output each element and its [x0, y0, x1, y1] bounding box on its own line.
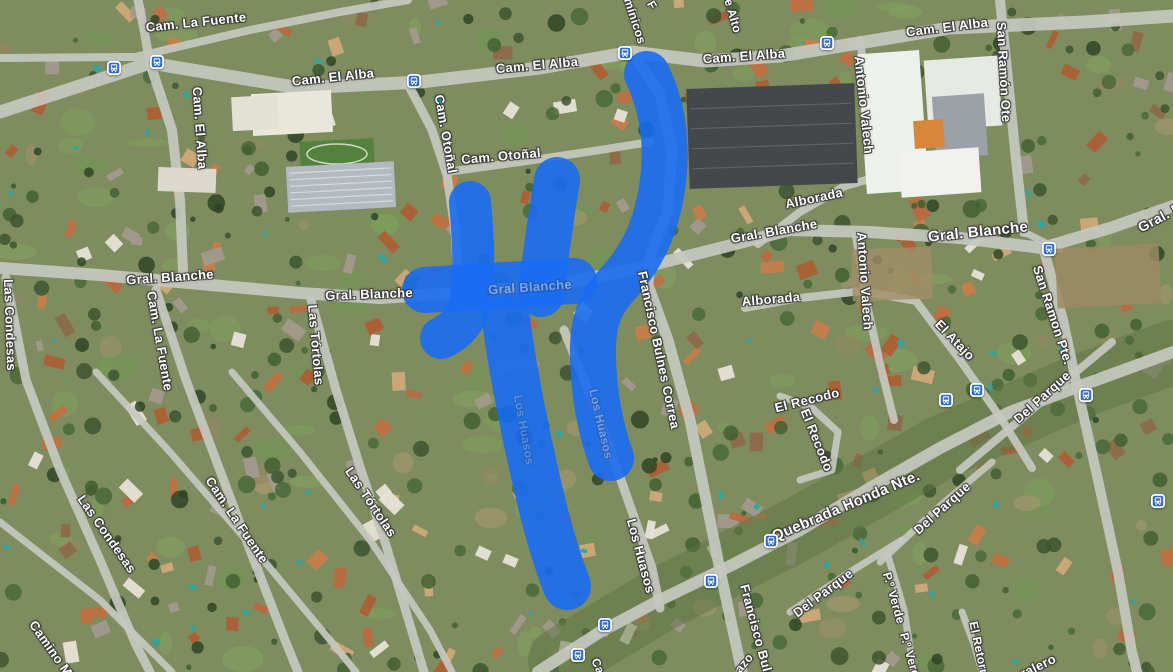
bus-stop-icon[interactable]	[820, 36, 834, 50]
bus-stop-icon[interactable]	[150, 55, 164, 69]
map-viewport[interactable]: Cam. La FuenteCam. El AlbaCam. El AlbaCa…	[0, 0, 1173, 672]
bus-stop-icon[interactable]	[1151, 494, 1165, 508]
bus-stop-icon[interactable]	[1079, 388, 1093, 402]
satellite-map	[0, 0, 1173, 672]
bus-stop-icon[interactable]	[407, 74, 421, 88]
bus-stop-icon[interactable]	[704, 574, 718, 588]
bus-stop-icon[interactable]	[571, 648, 585, 662]
bus-stop-icon[interactable]	[1042, 242, 1056, 256]
bus-stop-icon[interactable]	[939, 393, 953, 407]
bus-stop-icon[interactable]	[618, 46, 632, 60]
bus-stop-icon[interactable]	[598, 618, 612, 632]
bus-stop-icon[interactable]	[107, 61, 121, 75]
bus-stop-icon[interactable]	[970, 383, 984, 397]
bus-stop-icon[interactable]	[764, 534, 778, 548]
